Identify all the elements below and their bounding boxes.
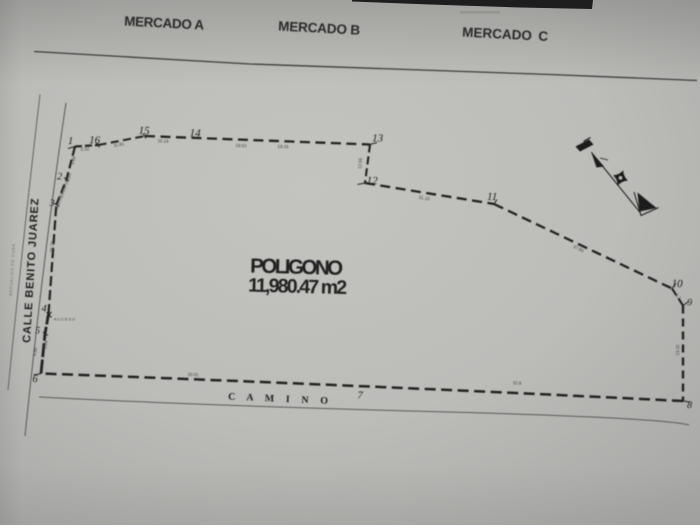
svg-text:18.16: 18.16: [277, 144, 289, 149]
svg-text:1: 1: [68, 136, 74, 147]
svg-text:13: 13: [372, 132, 384, 144]
svg-text:12: 12: [366, 175, 378, 187]
svg-text:18.63: 18.63: [235, 143, 247, 148]
svg-text:ACCESO: ACCESO: [54, 317, 75, 322]
svg-text:25.70: 25.70: [49, 241, 55, 253]
svg-text:11,980.47 m2: 11,980.47 m2: [248, 275, 348, 300]
svg-text:19.32: 19.32: [675, 344, 680, 356]
svg-text:9: 9: [687, 297, 692, 308]
svg-text:14: 14: [189, 127, 201, 139]
svg-text:30.01: 30.01: [187, 372, 199, 378]
svg-text:11: 11: [487, 191, 498, 203]
svg-text:10: 10: [671, 278, 683, 290]
svg-text:8: 8: [687, 400, 692, 411]
svg-text:32.9: 32.9: [513, 380, 522, 385]
svg-text:16: 16: [89, 134, 101, 146]
svg-text:12.55: 12.55: [357, 157, 363, 169]
svg-text:15: 15: [138, 125, 150, 137]
svg-text:5: 5: [35, 325, 40, 336]
svg-text:4: 4: [41, 303, 46, 314]
svg-text:2: 2: [57, 171, 62, 182]
svg-text:5.32: 5.32: [81, 146, 90, 151]
svg-text:15.14: 15.14: [157, 138, 169, 144]
